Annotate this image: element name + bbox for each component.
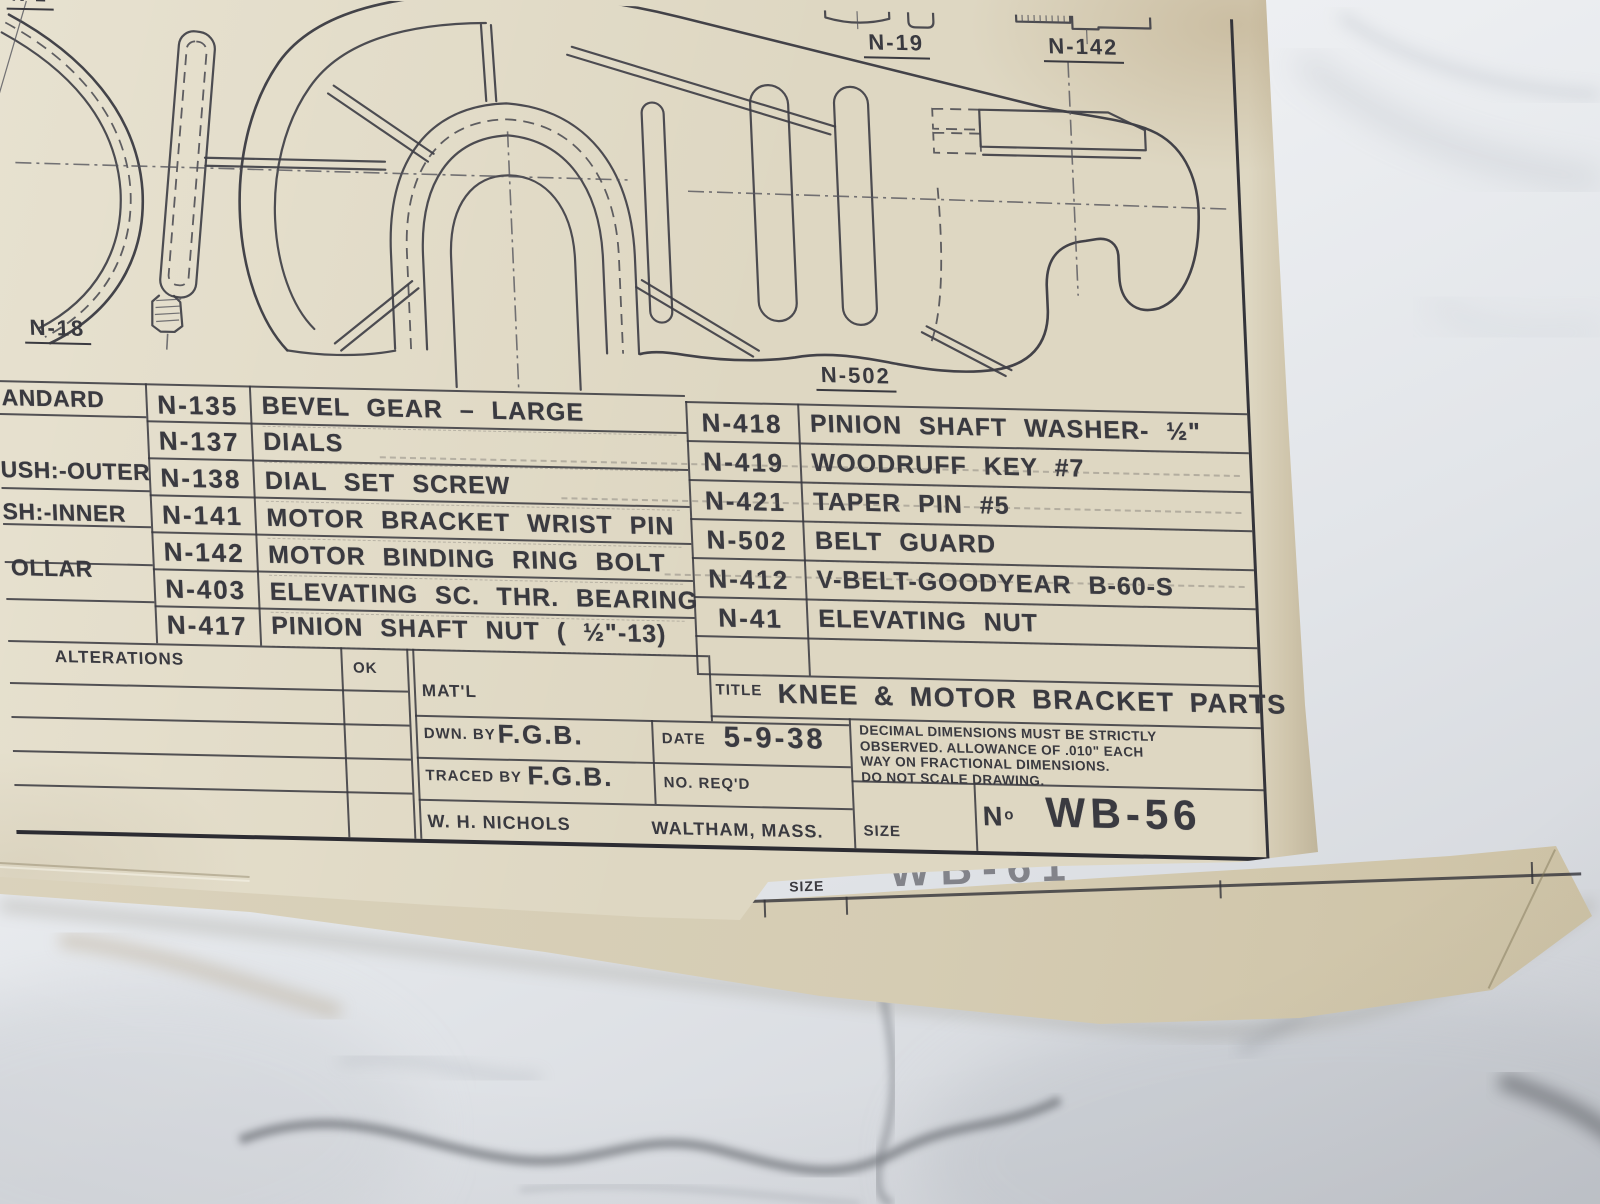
sheet-content: N-2 N-18 N-19 N-142 N-502 ANDARD USH:-OU… bbox=[0, 0, 1359, 921]
photographed-blueprint: WB-61 SIZE bbox=[0, 0, 1600, 1204]
company-location: WALTHAM, MASS. bbox=[651, 818, 824, 843]
number-prefix-sup: o bbox=[1004, 806, 1014, 823]
date-value: 5-9-38 bbox=[723, 722, 826, 757]
part-number: N-141 bbox=[152, 499, 253, 532]
under-sheet-cell-line bbox=[846, 897, 849, 915]
number-prefix: N bbox=[982, 801, 1005, 831]
date-label: DATE bbox=[661, 730, 705, 748]
drawn-by-value: F.G.B. bbox=[497, 719, 584, 752]
no-reqd-label: NO. REQ'D bbox=[663, 774, 750, 793]
under-sheet-cell-line bbox=[764, 899, 767, 917]
part-number: N-137 bbox=[149, 425, 250, 458]
margin-fragment: ANDARD bbox=[1, 384, 105, 413]
part-desc: BELT GUARD bbox=[814, 527, 1249, 565]
margin-fragment: USH:-OUTER bbox=[0, 456, 151, 486]
tolerance-notes: DECIMAL DIMENSIONS MUST BE STRICTLY OBSE… bbox=[859, 722, 1260, 793]
part-label-n2: N-2 bbox=[6, 0, 54, 11]
part-number: N-142 bbox=[153, 536, 254, 569]
drawing-number: No WB-56 bbox=[982, 787, 1203, 840]
number-value: WB-56 bbox=[1045, 788, 1203, 838]
material-label: MAT'L bbox=[422, 681, 478, 702]
part-number: N-403 bbox=[155, 573, 256, 606]
part-label-n19: N-19 bbox=[863, 29, 930, 59]
ok-label: OK bbox=[353, 659, 378, 677]
ring-part-drawing bbox=[0, 0, 149, 345]
part-number: N-138 bbox=[150, 462, 251, 495]
under-sheet-cell-line bbox=[1531, 862, 1534, 884]
alterations-label: ALTERATIONS bbox=[54, 647, 184, 670]
part-number: N-502 bbox=[694, 524, 799, 557]
part-number: N-135 bbox=[147, 389, 248, 422]
part-desc: ELEVATING NUT bbox=[818, 605, 1253, 643]
under-sheet-cell-line bbox=[1219, 880, 1222, 898]
traced-by-label: TRACED BY bbox=[425, 767, 522, 786]
shaft-part-drawing bbox=[139, 28, 230, 355]
traced-by-value: F.G.B. bbox=[527, 760, 614, 793]
size-label: SIZE bbox=[863, 822, 901, 840]
part-label-n142: N-142 bbox=[1043, 33, 1124, 64]
part-number: N-412 bbox=[696, 563, 801, 596]
part-number: N-418 bbox=[689, 407, 794, 440]
title-label: TITLE bbox=[715, 681, 762, 699]
company-name: W. H. NICHOLS bbox=[427, 811, 571, 835]
part-label-n18: N-18 bbox=[24, 315, 91, 345]
margin-fragment: OLLAR bbox=[10, 554, 93, 583]
part-number: N-417 bbox=[157, 609, 258, 642]
part-number: N-41 bbox=[698, 602, 803, 635]
part-label-n502: N-502 bbox=[815, 362, 896, 393]
drawn-by-label: DWN. BY bbox=[423, 725, 496, 744]
